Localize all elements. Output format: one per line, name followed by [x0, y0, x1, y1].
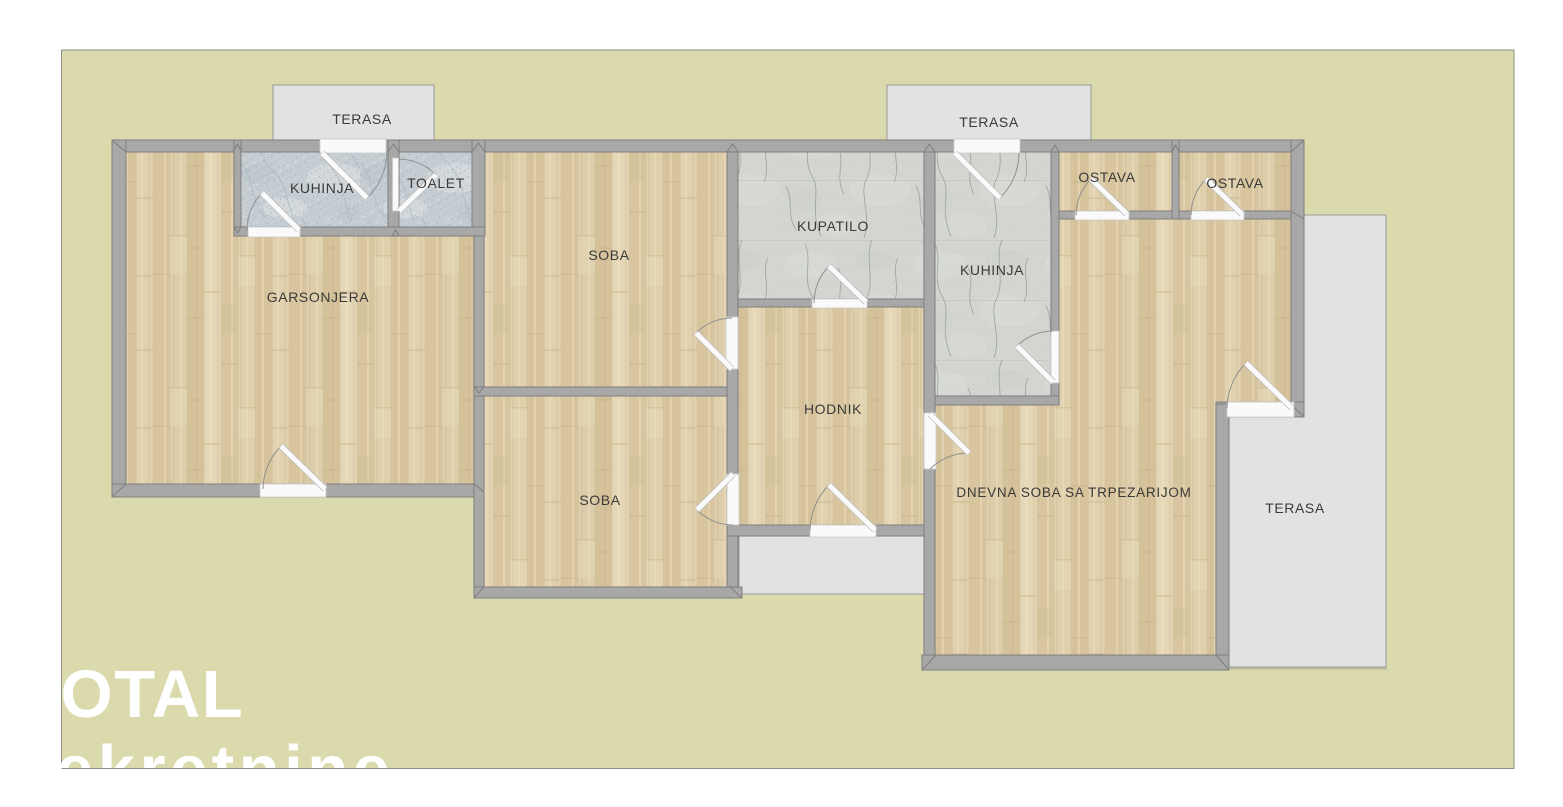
svg-text:SOBA: SOBA	[579, 492, 620, 508]
svg-text:OSTAVA: OSTAVA	[1078, 169, 1135, 185]
svg-text:KUHINJA: KUHINJA	[960, 262, 1024, 278]
svg-text:TERASA: TERASA	[1265, 500, 1325, 516]
svg-text:TERASA: TERASA	[332, 111, 392, 127]
svg-text:TOALET: TOALET	[407, 175, 465, 191]
svg-text:HODNIK: HODNIK	[804, 401, 862, 417]
svg-text:OSTAVA: OSTAVA	[1206, 175, 1263, 191]
svg-text:TERASA: TERASA	[959, 114, 1019, 130]
svg-text:KUHINJA: KUHINJA	[290, 180, 354, 196]
svg-text:KUPATILO: KUPATILO	[797, 218, 869, 234]
svg-text:OTAL: OTAL	[61, 657, 245, 732]
svg-text:SOBA: SOBA	[588, 247, 629, 263]
svg-text:GARSONJERA: GARSONJERA	[267, 289, 370, 305]
svg-text:DNEVNA SOBA SA TRPEZARIJOM: DNEVNA SOBA SA TRPEZARIJOM	[956, 485, 1191, 500]
